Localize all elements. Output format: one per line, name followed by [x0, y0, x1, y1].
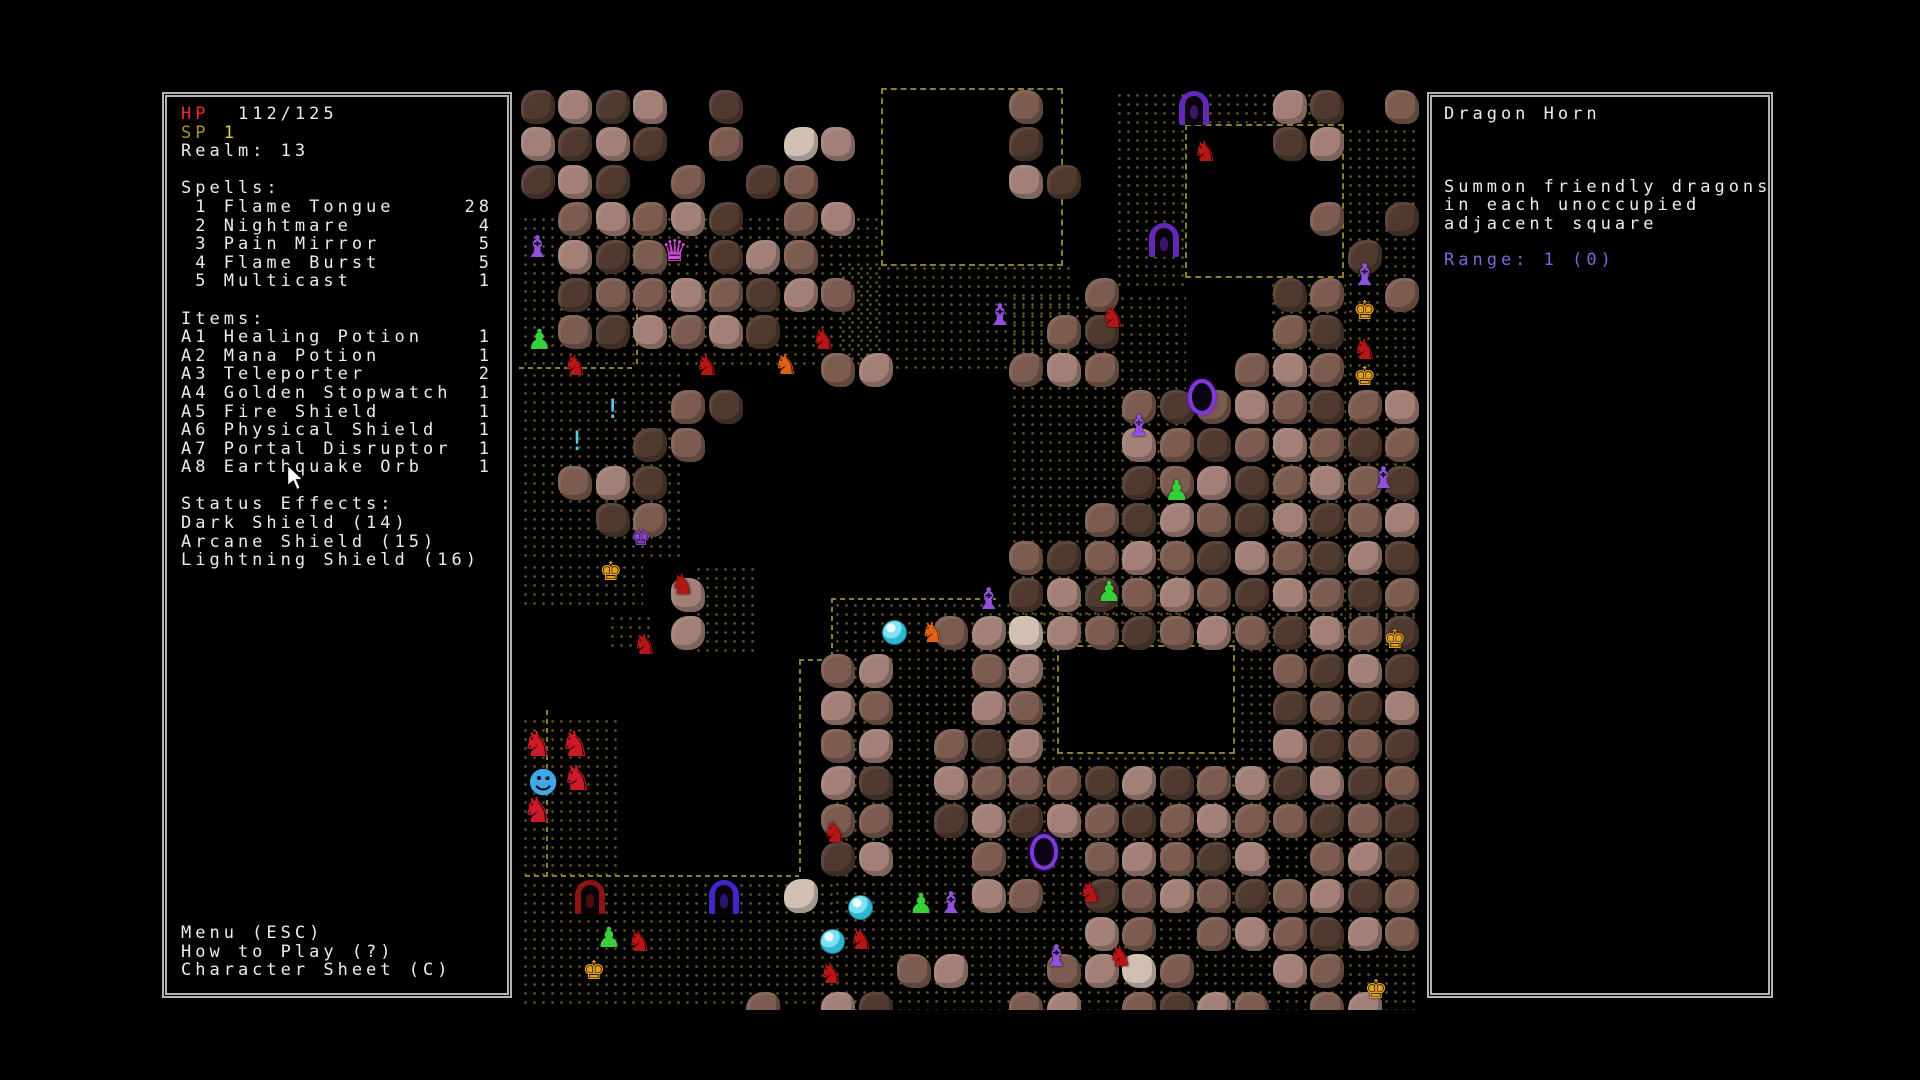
rock-tile[interactable]	[1273, 954, 1307, 988]
rock-tile[interactable]	[1385, 578, 1419, 612]
fox-sprite[interactable]: ♞	[805, 321, 842, 358]
items-header: Items:	[181, 310, 493, 329]
rock-tile[interactable]	[671, 202, 705, 236]
witch-sprite[interactable]: ♝	[982, 297, 1019, 334]
purple-door[interactable]	[1149, 223, 1179, 257]
item-row-count: 2	[479, 365, 493, 384]
rock-tile[interactable]	[1385, 503, 1419, 537]
rock-tile[interactable]	[859, 842, 893, 876]
rock-tile[interactable]	[1310, 578, 1344, 612]
rock-tile[interactable]	[671, 315, 705, 349]
rock-tile[interactable]	[746, 165, 780, 199]
rock-tile[interactable]	[558, 315, 592, 349]
spell-row-count: 1	[479, 272, 493, 291]
rock-tile[interactable]	[1273, 278, 1307, 312]
rock-tile[interactable]	[633, 466, 667, 500]
rock-tile[interactable]	[1235, 578, 1269, 612]
rock-tile[interactable]	[1009, 691, 1043, 725]
rock-tile[interactable]	[633, 127, 667, 161]
rock-tile[interactable]	[1235, 466, 1269, 500]
rock-tile[interactable]	[1235, 804, 1269, 838]
rock-tile[interactable]	[709, 315, 743, 349]
rock-tile[interactable]	[1310, 804, 1344, 838]
rock-tile[interactable]	[859, 654, 893, 688]
rock-tile[interactable]	[1009, 804, 1043, 838]
spider-sprite[interactable]: ♟	[1158, 472, 1195, 509]
rock-tile[interactable]	[1273, 90, 1307, 124]
dungeon-map[interactable]: ♝♛♝♞♞♟♞♞♞♞!!♝♟♝♚♞♚♝♚♚♞♝♟♞♞♚♞♞♞♞☻♞♞♟♝♟♞♞♝…	[519, 88, 1422, 1010]
menu-item[interactable]: Character Sheet (C)	[181, 961, 493, 980]
rock-tile[interactable]	[1122, 503, 1156, 537]
rock-tile[interactable]	[633, 90, 667, 124]
rock-tile[interactable]	[1047, 165, 1081, 199]
rock-tile[interactable]	[859, 804, 893, 838]
rock-tile[interactable]	[1009, 90, 1043, 124]
rock-tile[interactable]	[1197, 842, 1231, 876]
rock-tile[interactable]	[596, 315, 630, 349]
rock-tile[interactable]	[1273, 541, 1307, 575]
item-row[interactable]: A3 Teleporter2	[181, 365, 493, 384]
rock-tile[interactable]	[1047, 541, 1081, 575]
rock-tile[interactable]	[1385, 390, 1419, 424]
rock-tile[interactable]	[671, 278, 705, 312]
rock-tile[interactable]	[859, 691, 893, 725]
rock-tile[interactable]	[1047, 766, 1081, 800]
rock-tile[interactable]	[1310, 353, 1344, 387]
rock-tile[interactable]	[1385, 842, 1419, 876]
rock-tile[interactable]	[1122, 616, 1156, 650]
witch-sprite[interactable]: ♝	[1346, 257, 1383, 294]
item-row[interactable]: A8 Earthquake Orb1	[181, 458, 493, 477]
fox-sprite[interactable]: ♞	[1094, 299, 1131, 336]
rock-tile[interactable]	[558, 240, 592, 274]
item-row-count: 1	[479, 403, 493, 422]
rock-tile[interactable]	[1235, 879, 1269, 913]
rock-tile[interactable]	[1197, 578, 1231, 612]
rock-tile[interactable]	[784, 202, 818, 236]
rock-tile[interactable]	[1385, 691, 1419, 725]
fox-sprite[interactable]: ♞	[1072, 874, 1109, 911]
rock-tile[interactable]	[1310, 428, 1344, 462]
rock-tile[interactable]	[1348, 541, 1382, 575]
wall-border	[799, 660, 801, 876]
rock-tile[interactable]	[1385, 804, 1419, 838]
rock-tile[interactable]	[558, 466, 592, 500]
rock-tile[interactable]	[1385, 202, 1419, 236]
rock-tile[interactable]	[671, 390, 705, 424]
rock-tile[interactable]	[1085, 353, 1119, 387]
rock-tile[interactable]	[1160, 541, 1194, 575]
rock-tile[interactable]	[633, 202, 667, 236]
spider-sprite[interactable]: ♟	[1091, 573, 1128, 610]
rock-tile[interactable]	[1348, 879, 1382, 913]
witch-sprite[interactable]: ♝	[1365, 460, 1402, 497]
rock-tile[interactable]	[709, 90, 743, 124]
rock-tile[interactable]	[596, 165, 630, 199]
rock-tile[interactable]	[1310, 278, 1344, 312]
rock-tile[interactable]	[1273, 804, 1307, 838]
rock-tile[interactable]	[972, 879, 1006, 913]
wall-border	[831, 598, 833, 662]
item-row[interactable]: A4 Golden Stopwatch1	[181, 384, 493, 403]
rock-tile[interactable]	[1122, 992, 1156, 1010]
rock-tile[interactable]	[1310, 917, 1344, 951]
status-effects-header: Status Effects:	[181, 495, 493, 514]
spell-row[interactable]: 3 Pain Mirror5	[181, 235, 493, 254]
spell-list: 1 Flame Tongue28 2 Nightmare4 3 Pain Mir…	[181, 198, 493, 291]
rock-tile[interactable]	[1197, 541, 1231, 575]
rock-tile[interactable]	[1009, 353, 1043, 387]
rock-tile[interactable]	[1009, 616, 1043, 650]
rock-tile[interactable]	[746, 315, 780, 349]
rock-tile[interactable]	[1085, 616, 1119, 650]
item-row-count: 1	[479, 384, 493, 403]
rock-tile[interactable]	[671, 428, 705, 462]
rock-tile[interactable]	[821, 278, 855, 312]
rock-tile[interactable]	[1385, 428, 1419, 462]
rock-tile[interactable]	[1273, 729, 1307, 763]
rock-tile[interactable]	[596, 466, 630, 500]
rock-tile[interactable]	[1160, 428, 1194, 462]
rock-tile[interactable]	[1348, 842, 1382, 876]
rock-tile[interactable]	[1310, 390, 1344, 424]
rock-tile[interactable]	[1160, 616, 1194, 650]
rock-tile[interactable]	[784, 278, 818, 312]
rock-tile[interactable]	[934, 804, 968, 838]
spell-row[interactable]: 4 Flame Burst5	[181, 254, 493, 273]
rock-tile[interactable]	[558, 202, 592, 236]
hp-line: HP 112/125	[181, 105, 493, 124]
rock-tile[interactable]	[1310, 654, 1344, 688]
rock-tile[interactable]	[1235, 766, 1269, 800]
demon-sprite[interactable]: ♛	[656, 233, 693, 270]
rock-tile[interactable]	[1310, 466, 1344, 500]
rock-tile[interactable]	[1385, 90, 1419, 124]
fox-sprite[interactable]: ♞	[1186, 133, 1223, 170]
rock-tile[interactable]	[709, 390, 743, 424]
rock-tile[interactable]	[859, 729, 893, 763]
rock-tile[interactable]	[521, 127, 555, 161]
rock-tile[interactable]	[671, 165, 705, 199]
crab-sprite[interactable]: ♞	[767, 346, 804, 383]
status-effect-list: Dark Shield (14)Arcane Shield (15)Lightn…	[181, 514, 493, 570]
rock-tile[interactable]	[1047, 315, 1081, 349]
rock-tile[interactable]	[934, 729, 968, 763]
rock-tile[interactable]	[558, 278, 592, 312]
rock-tile[interactable]	[1348, 503, 1382, 537]
rock-tile[interactable]	[972, 766, 1006, 800]
rock-tile[interactable]	[972, 804, 1006, 838]
menu-item[interactable]: Menu (ESC)	[181, 924, 493, 943]
rock-tile[interactable]	[1235, 917, 1269, 951]
spider-sprite[interactable]: ♟	[521, 321, 558, 358]
rock-tile[interactable]	[1122, 842, 1156, 876]
witch-sprite[interactable]: ♝	[519, 229, 556, 266]
fox-sprite[interactable]: ♞	[816, 814, 853, 851]
rock-tile[interactable]	[1385, 729, 1419, 763]
rock-tile[interactable]	[1273, 654, 1307, 688]
rock-tile[interactable]	[1273, 503, 1307, 537]
rock-tile[interactable]	[633, 428, 667, 462]
rock-tile[interactable]	[1348, 691, 1382, 725]
item-info-range: Range: 1 (0)	[1444, 251, 1756, 270]
rock-tile[interactable]	[1122, 541, 1156, 575]
item-row-name: A3 Teleporter	[181, 365, 366, 384]
rock-tile[interactable]	[1310, 842, 1344, 876]
potion-sprite[interactable]: !	[559, 423, 596, 460]
red-door[interactable]	[575, 880, 605, 914]
fox-sprite[interactable]: ♞	[842, 921, 879, 958]
fox-sprite[interactable]: ♞	[812, 955, 849, 992]
rock-tile[interactable]	[1235, 842, 1269, 876]
rock-tile[interactable]	[709, 240, 743, 274]
rock-tile[interactable]	[859, 766, 893, 800]
rock-tile[interactable]	[1009, 127, 1043, 161]
rock-tile[interactable]	[596, 127, 630, 161]
rock-tile[interactable]	[1310, 541, 1344, 575]
rock-tile[interactable]	[1047, 353, 1081, 387]
rock-tile[interactable]	[1273, 127, 1307, 161]
rock-tile[interactable]	[1047, 804, 1081, 838]
indigo-door[interactable]	[709, 880, 739, 914]
rock-tile[interactable]	[1197, 766, 1231, 800]
realm-line: Realm: 13	[181, 142, 493, 161]
rock-tile[interactable]	[1310, 954, 1344, 988]
rock-tile[interactable]	[1385, 917, 1419, 951]
rock-tile[interactable]	[821, 202, 855, 236]
rock-tile[interactable]	[1197, 917, 1231, 951]
rock-tile[interactable]	[934, 954, 968, 988]
rock-tile[interactable]	[1273, 766, 1307, 800]
rock-tile[interactable]	[1009, 766, 1043, 800]
hp-label: HP	[181, 104, 209, 124]
rock-tile[interactable]	[821, 729, 855, 763]
rock-tile[interactable]	[934, 766, 968, 800]
rock-tile[interactable]	[1348, 428, 1382, 462]
rock-tile[interactable]	[558, 90, 592, 124]
rock-tile[interactable]	[1273, 917, 1307, 951]
rock-tile[interactable]	[972, 729, 1006, 763]
rock-tile[interactable]	[596, 278, 630, 312]
rock-tile[interactable]	[1273, 390, 1307, 424]
rock-tile[interactable]	[1310, 766, 1344, 800]
rock-tile[interactable]	[521, 90, 555, 124]
rock-tile[interactable]	[1348, 729, 1382, 763]
rock-tile[interactable]	[746, 278, 780, 312]
rock-tile[interactable]	[1348, 917, 1382, 951]
imp-sprite[interactable]: ♚	[1376, 622, 1413, 659]
item-row[interactable]: A2 Mana Potion1	[181, 347, 493, 366]
rock-tile[interactable]	[1273, 353, 1307, 387]
rock-tile[interactable]	[1235, 428, 1269, 462]
rock-tile[interactable]	[1310, 90, 1344, 124]
rock-tile[interactable]	[784, 240, 818, 274]
rock-tile[interactable]	[1122, 466, 1156, 500]
rock-tile[interactable]	[1235, 390, 1269, 424]
rock-tile[interactable]	[709, 278, 743, 312]
rock-tile[interactable]	[1273, 879, 1307, 913]
rock-tile[interactable]	[1160, 842, 1194, 876]
rock-tile[interactable]	[784, 165, 818, 199]
rock-tile[interactable]	[1310, 729, 1344, 763]
rock-tile[interactable]	[821, 654, 855, 688]
rock-tile[interactable]	[972, 654, 1006, 688]
rock-tile[interactable]	[1085, 766, 1119, 800]
floor-area	[1113, 88, 1186, 291]
rock-tile[interactable]	[1160, 879, 1194, 913]
rock-tile[interactable]	[821, 127, 855, 161]
witch-sprite[interactable]: ♝	[970, 581, 1007, 618]
rock-tile[interactable]	[1047, 578, 1081, 612]
player-sprite[interactable]: ☻	[525, 765, 562, 802]
rock-tile[interactable]	[1009, 879, 1043, 913]
purple-door[interactable]	[1179, 91, 1209, 125]
rock-tile[interactable]	[671, 616, 705, 650]
rock-tile[interactable]	[1197, 804, 1231, 838]
rock-tile[interactable]	[1197, 466, 1231, 500]
rock-tile[interactable]	[558, 127, 592, 161]
rock-tile[interactable]	[821, 992, 855, 1010]
rock-tile[interactable]	[1273, 428, 1307, 462]
rock-tile[interactable]	[1197, 428, 1231, 462]
dragon-sprite[interactable]: ♞	[519, 727, 556, 764]
rock-tile[interactable]	[1009, 541, 1043, 575]
rock-tile[interactable]	[821, 766, 855, 800]
rock-tile[interactable]	[1160, 804, 1194, 838]
rock-tile[interactable]	[596, 202, 630, 236]
rock-tile[interactable]	[1160, 578, 1194, 612]
imp-sprite[interactable]: ♚	[1358, 972, 1395, 1009]
rock-tile[interactable]	[1273, 315, 1307, 349]
impP-sprite[interactable]: ♚	[622, 520, 659, 557]
potion-sprite[interactable]: !	[594, 391, 631, 428]
rock-tile[interactable]	[558, 165, 592, 199]
rock-tile[interactable]	[1009, 654, 1043, 688]
item-row[interactable]: A5 Fire Shield1	[181, 403, 493, 422]
rock-tile[interactable]	[1310, 616, 1344, 650]
imp-sprite[interactable]: ♚	[1346, 359, 1383, 396]
spell-row[interactable]: 2 Nightmare4	[181, 217, 493, 236]
rock-tile[interactable]	[1197, 616, 1231, 650]
fox-sprite[interactable]: ♞	[1102, 938, 1139, 975]
item-row[interactable]: A1 Healing Potion1	[181, 328, 493, 347]
rock-tile[interactable]	[1348, 804, 1382, 838]
rock-tile[interactable]	[1385, 766, 1419, 800]
rock-tile[interactable]	[1160, 766, 1194, 800]
imp-sprite[interactable]: ♚	[575, 953, 612, 990]
item-row-name: A4 Golden Stopwatch	[181, 384, 451, 403]
rock-tile[interactable]	[1310, 315, 1344, 349]
rock-tile[interactable]	[1160, 954, 1194, 988]
item-row-count: 1	[479, 421, 493, 440]
rock-tile[interactable]	[1122, 879, 1156, 913]
rock-tile[interactable]	[897, 954, 931, 988]
imp-sprite[interactable]: ♚	[1346, 293, 1383, 330]
rock-tile[interactable]	[1385, 541, 1419, 575]
spells-header: Spells:	[181, 179, 493, 198]
rock-tile[interactable]	[1273, 691, 1307, 725]
spell-row-name: 1 Flame Tongue	[181, 198, 395, 217]
rock-tile[interactable]	[784, 127, 818, 161]
dragon-sprite[interactable]: ♞	[559, 761, 596, 798]
rock-tile[interactable]	[1385, 278, 1419, 312]
menu-item[interactable]: How to Play (?)	[181, 943, 493, 962]
rock-tile[interactable]	[1009, 578, 1043, 612]
rock-tile[interactable]	[972, 691, 1006, 725]
fox-sprite[interactable]: ♞	[557, 347, 594, 384]
rock-tile[interactable]	[1085, 541, 1119, 575]
rock-tile[interactable]	[1122, 804, 1156, 838]
rock-tile[interactable]	[521, 165, 555, 199]
rock-tile[interactable]	[821, 691, 855, 725]
rock-tile[interactable]	[972, 842, 1006, 876]
rock-tile[interactable]	[1235, 541, 1269, 575]
witch-sprite[interactable]: ♝	[1038, 938, 1075, 975]
witch-sprite[interactable]: ♝	[1121, 408, 1158, 445]
rock-tile[interactable]	[1273, 578, 1307, 612]
rock-tile[interactable]	[1235, 503, 1269, 537]
rock-tile[interactable]	[1197, 503, 1231, 537]
item-row-count: 1	[479, 440, 493, 459]
rock-tile[interactable]	[1348, 578, 1382, 612]
rock-tile[interactable]	[1085, 842, 1119, 876]
rock-tile[interactable]	[1385, 879, 1419, 913]
rock-tile[interactable]	[1310, 127, 1344, 161]
rock-tile[interactable]	[1310, 202, 1344, 236]
rock-tile[interactable]	[1235, 616, 1269, 650]
item-row[interactable]: A6 Physical Shield1	[181, 421, 493, 440]
rock-tile[interactable]	[1009, 165, 1043, 199]
spell-row[interactable]: 5 Multicast1	[181, 272, 493, 291]
rock-tile[interactable]	[1348, 766, 1382, 800]
rock-tile[interactable]	[1085, 503, 1119, 537]
rock-tile[interactable]	[1235, 353, 1269, 387]
item-row[interactable]: A7 Portal Disruptor1	[181, 440, 493, 459]
rock-tile[interactable]	[1047, 616, 1081, 650]
rock-tile[interactable]	[1310, 879, 1344, 913]
rock-tile[interactable]	[1122, 766, 1156, 800]
rock-tile[interactable]	[746, 240, 780, 274]
rock-tile[interactable]	[633, 315, 667, 349]
item-row-name: A1 Healing Potion	[181, 328, 423, 347]
imp-sprite[interactable]: ♚	[592, 554, 629, 591]
spell-row[interactable]: 1 Flame Tongue28	[181, 198, 493, 217]
rock-tile[interactable]	[1273, 616, 1307, 650]
fox-sprite[interactable]: ♞	[688, 347, 725, 384]
rock-tile[interactable]	[972, 616, 1006, 650]
rock-tile[interactable]	[709, 202, 743, 236]
fox-sprite[interactable]: ♞	[664, 566, 701, 603]
fox-sprite[interactable]: ♞	[626, 626, 663, 663]
rock-tile[interactable]	[784, 879, 818, 913]
rock-tile[interactable]	[709, 127, 743, 161]
rock-tile[interactable]	[1197, 879, 1231, 913]
item-list: A1 Healing Potion1A2 Mana Potion1A3 Tele…	[181, 328, 493, 477]
spell-row-count: 4	[479, 217, 493, 236]
rock-tile[interactable]	[1085, 804, 1119, 838]
rock-tile[interactable]	[859, 353, 893, 387]
crab-sprite[interactable]: ♞	[914, 614, 951, 651]
rock-tile[interactable]	[1310, 691, 1344, 725]
rock-tile[interactable]	[1273, 466, 1307, 500]
rock-tile[interactable]	[1009, 729, 1043, 763]
rock-tile[interactable]	[596, 240, 630, 274]
witch-sprite[interactable]: ♝	[933, 885, 970, 922]
rock-tile[interactable]	[633, 278, 667, 312]
rock-tile[interactable]	[1310, 503, 1344, 537]
fox-sprite[interactable]: ♞	[621, 923, 658, 960]
rock-tile[interactable]	[596, 90, 630, 124]
